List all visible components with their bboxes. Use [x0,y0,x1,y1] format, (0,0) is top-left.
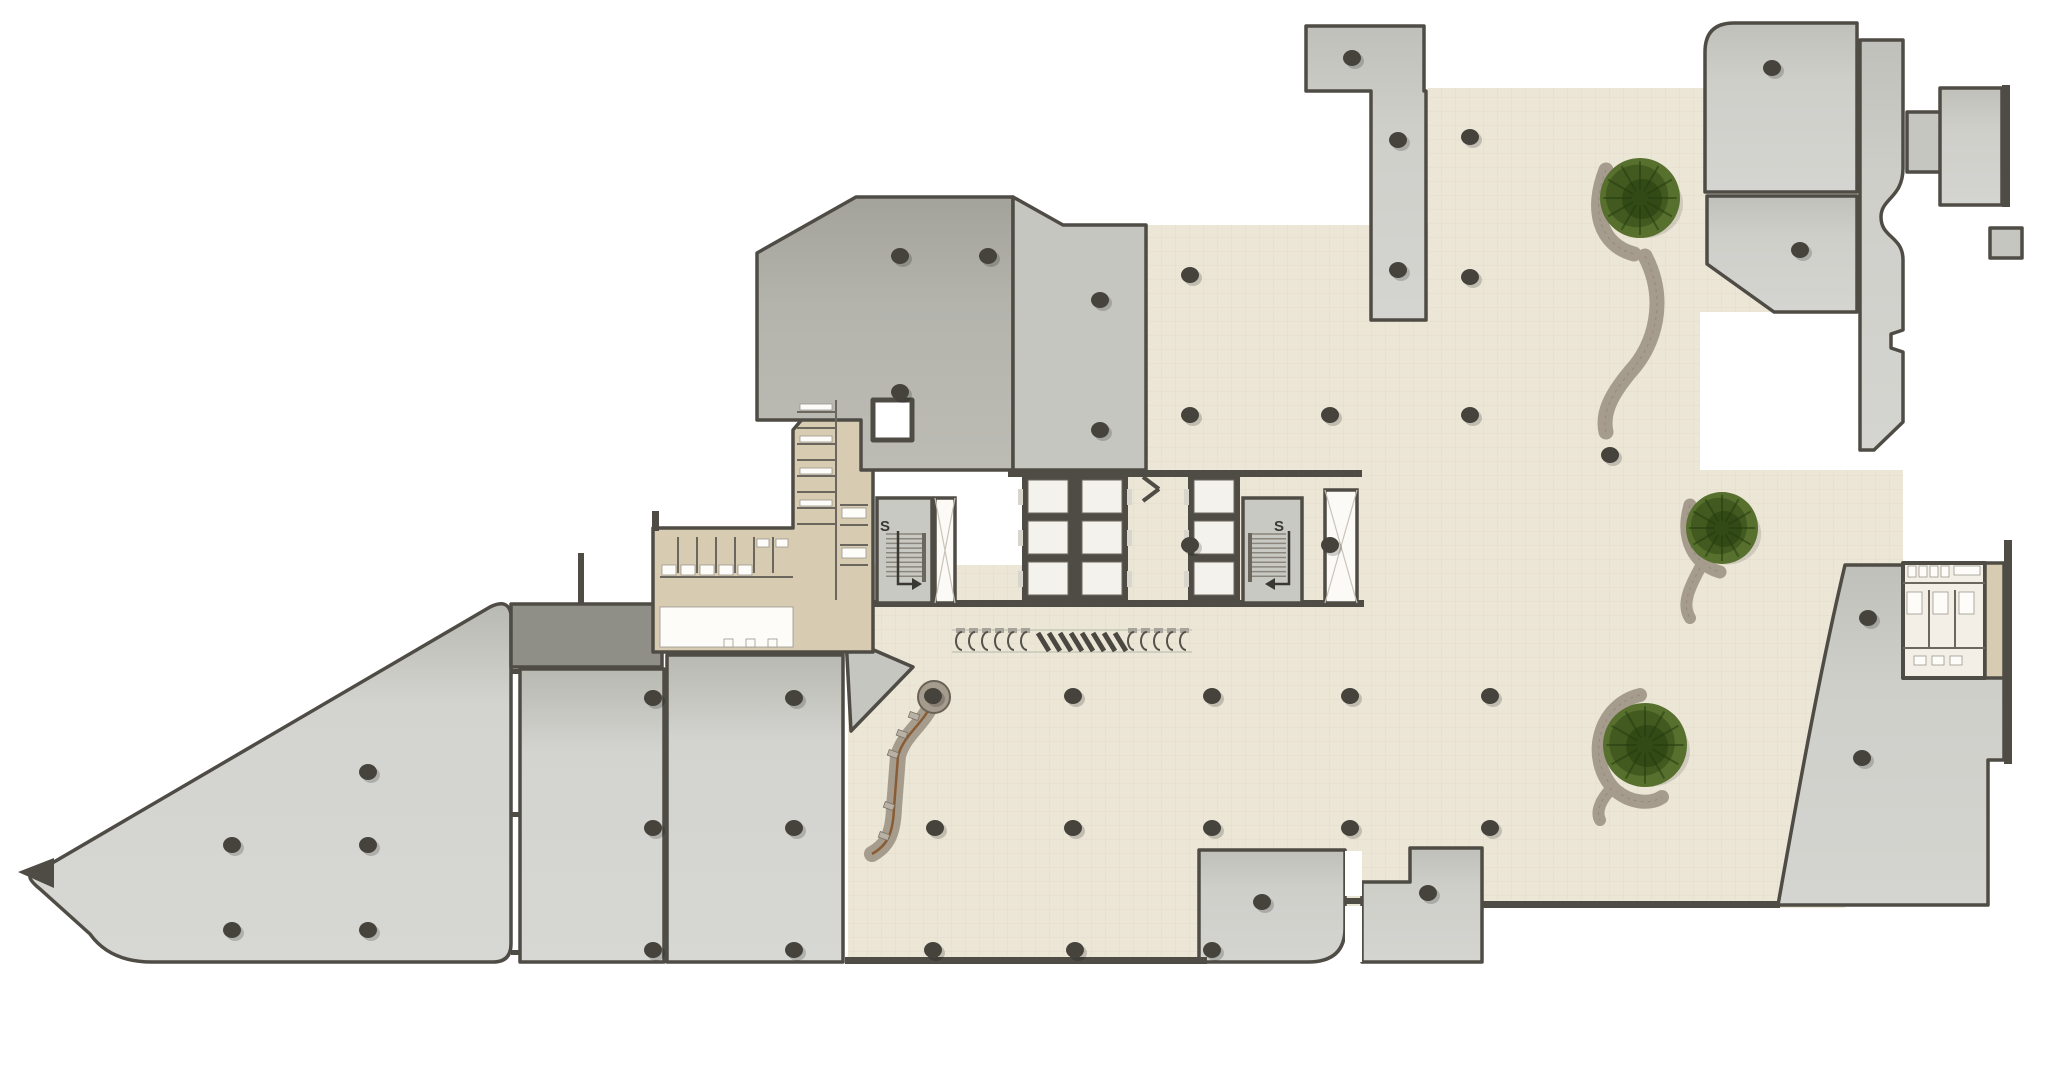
fixture [757,539,769,547]
fixture [800,436,832,442]
elevator-bank-east-door [1184,489,1189,505]
column [1601,447,1619,463]
column [1343,50,1361,66]
column [1791,242,1809,258]
room-restroom-right-strip [1985,563,2004,678]
fixture [700,565,714,575]
room-far-right-box [1990,228,2022,258]
fixture [800,468,832,474]
fixture [776,539,788,547]
column [1461,129,1479,145]
elevator-bank-east-door [1184,571,1189,587]
elevator-bank-center-car [1082,562,1122,595]
wall-segment [1345,898,1362,904]
room-dark-band [511,604,662,667]
elevator-bank-center-car [1082,480,1122,513]
white-gap [1345,851,1362,896]
fixture [1907,592,1922,614]
column [785,820,803,836]
elevator-bank-east-car [1194,480,1234,513]
column [1853,750,1871,766]
elevator-bank-center-door [1127,571,1132,587]
column [1341,688,1359,704]
fixture [724,639,733,647]
column [1481,688,1499,704]
column [1389,262,1407,278]
column [1481,820,1499,836]
elevator-bank-center-car [1028,480,1068,513]
column [1091,422,1109,438]
column [644,820,662,836]
elevator-bank-center-car [1028,521,1068,554]
column [359,922,377,938]
column [1181,267,1199,283]
wall-segment [2002,85,2010,207]
fixture [1930,566,1938,577]
fixture [1954,566,1980,575]
elevator-bank-center-door [1018,489,1023,505]
wall-segment [2004,540,2012,764]
fixture [1941,566,1949,577]
column [1419,885,1437,901]
column [1181,537,1199,553]
room-east-violin [1860,40,1903,450]
fixture [842,548,866,558]
wall-segment [511,669,520,674]
column [1253,894,1271,910]
fixture [1908,566,1916,577]
elevator-bank-center-door [1018,530,1023,546]
column [223,922,241,938]
column [1203,820,1221,836]
room-elevator-duct-box [873,400,912,440]
fixture [662,565,676,575]
fixture [1914,656,1926,665]
fixture [738,565,752,575]
elevator-bank-east-car [1194,562,1234,595]
white-gap [1345,906,1362,962]
elevator-bank-center-car [1028,562,1068,595]
column [1091,292,1109,308]
room-triangle-hall [30,604,511,962]
fixture [800,404,832,410]
column [644,690,662,706]
stair-left-rail [922,533,926,582]
room-east-headbox [1907,112,1942,172]
column [785,942,803,958]
fixture [1933,592,1948,614]
wall-segment [845,957,1207,964]
column [926,820,944,836]
column [1461,407,1479,423]
floorplan-stage: S S [0,0,2048,1078]
column [1064,820,1082,836]
column [1461,269,1479,285]
column [223,837,241,853]
elevator-bank-center-door [1018,571,1023,587]
wall-segment [511,812,520,817]
room-b [667,655,843,962]
column [1181,407,1199,423]
elevator-bank-center-car [1082,521,1122,554]
wall-segment [578,553,584,604]
column [891,248,909,264]
column [1066,942,1084,958]
column [1859,610,1877,626]
fixture [1919,566,1927,577]
room-northeast-1 [1705,23,1857,192]
elevator-bank-center-door [1127,489,1132,505]
column [1203,942,1221,958]
fixture [800,500,832,506]
fixture [1932,656,1944,665]
column [1203,688,1221,704]
column [979,248,997,264]
fixture [768,639,777,647]
column [1321,537,1339,553]
stair-label-right: S [1274,518,1284,535]
room-far-right-top [1940,88,2002,205]
column [891,384,909,400]
fixture [719,565,733,575]
column [924,942,942,958]
column [1064,688,1082,704]
wall-segment [652,511,659,531]
column [1763,60,1781,76]
wall-segment [511,950,520,955]
column [1341,820,1359,836]
column [644,942,662,958]
stair-label-left: S [880,518,890,535]
floorplan-svg: S S [0,0,2048,1078]
room-a [520,669,664,962]
room-top-cluster-right [1013,197,1146,470]
stair-right-rail [1248,533,1252,582]
wall-segment [1482,901,1780,908]
fixture [1950,656,1962,665]
fixture [1959,592,1974,614]
column [924,688,942,704]
column [359,764,377,780]
column [1321,407,1339,423]
column [1389,132,1407,148]
elevator-bank-center-door [1127,530,1132,546]
fixture [681,565,695,575]
fixture [842,508,866,518]
fixture [746,639,755,647]
column [785,690,803,706]
column [359,837,377,853]
